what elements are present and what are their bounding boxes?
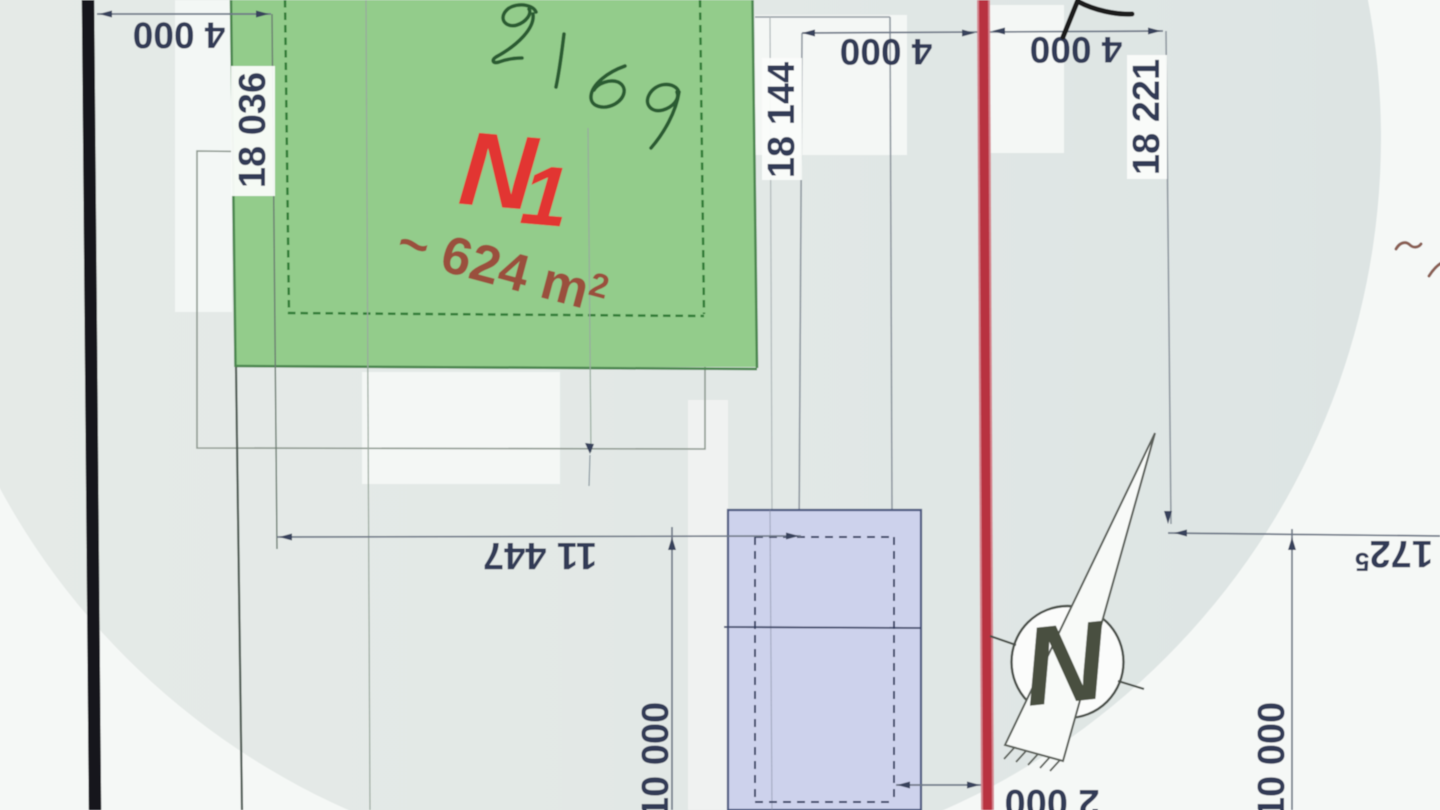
svg-text:1: 1 [517, 147, 572, 246]
svg-text:2 000: 2 000 [1004, 781, 1099, 810]
svg-text:11 447: 11 447 [483, 534, 597, 576]
svg-text:10 000: 10 000 [1251, 702, 1293, 810]
svg-text:18 036: 18 036 [232, 72, 274, 188]
svg-text:4 000: 4 000 [133, 15, 226, 56]
svg-text:10 000: 10 000 [635, 702, 677, 810]
svg-text:4 000: 4 000 [840, 31, 933, 72]
svg-text:N: N [1017, 597, 1113, 730]
svg-text:18 144: 18 144 [761, 62, 803, 178]
svg-text:18 221: 18 221 [1126, 59, 1168, 175]
svg-text:4 000: 4 000 [1030, 29, 1123, 70]
